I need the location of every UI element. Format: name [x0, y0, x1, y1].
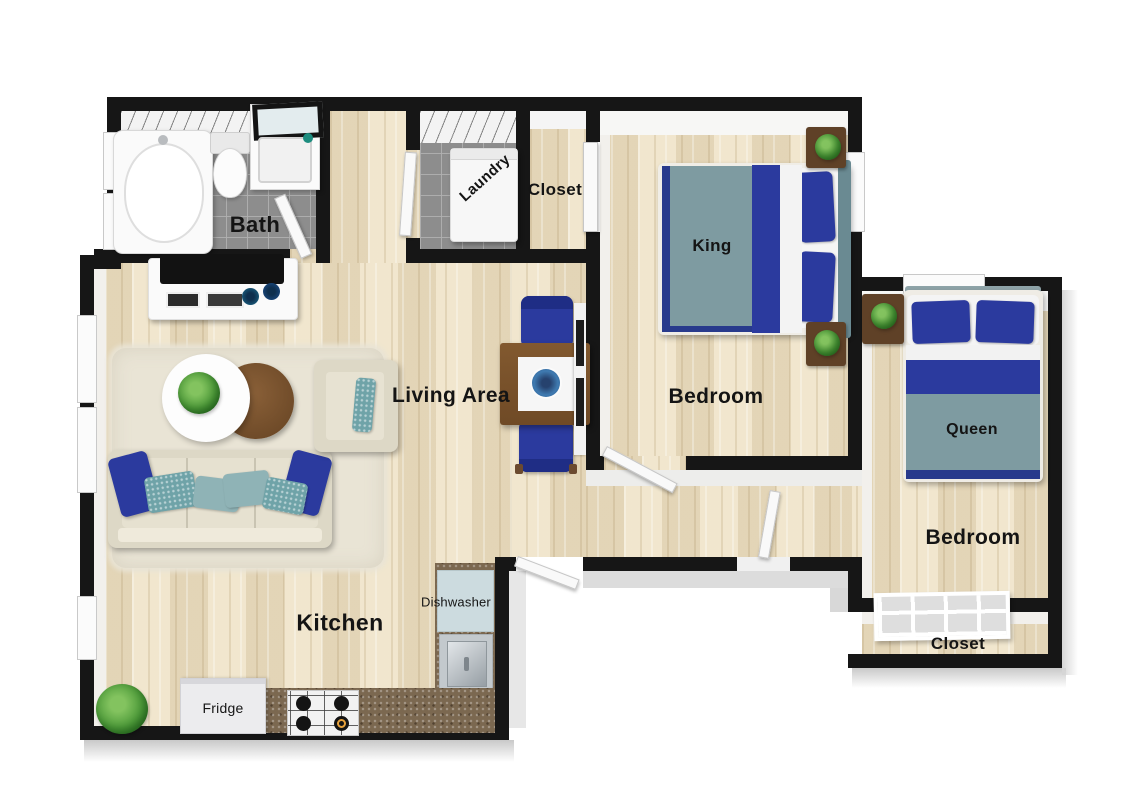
- king-plant-bottom: [814, 330, 840, 356]
- kitchen-sink: [439, 634, 493, 692]
- dining-chair-leg-2: [569, 464, 577, 474]
- hallway-top-floor: [330, 111, 406, 263]
- stove-burner-4: [334, 716, 349, 731]
- armchair: [314, 360, 398, 452]
- wall-laundry-south: [406, 249, 600, 263]
- wall-entry-b: [583, 557, 737, 571]
- dining-chair-top: [521, 296, 573, 348]
- king-label: King: [692, 236, 731, 256]
- closet-top-door: [583, 142, 598, 232]
- coffee-table-plant: [178, 372, 220, 414]
- entry-corner-wall-face: [830, 588, 848, 612]
- king-blanket-stripe: [752, 165, 780, 333]
- wall-king-west-a: [586, 97, 600, 142]
- king-bed: [658, 163, 850, 335]
- living-window-2: [77, 407, 97, 493]
- floor-plan: Bath Laundry Closet King Bedroom Queen B…: [0, 0, 1140, 793]
- console-item-1: [166, 292, 200, 308]
- console-speaker-2: [263, 283, 280, 300]
- sofa-pillow-teal-1: [143, 470, 198, 513]
- king-headboard: [838, 160, 851, 338]
- toilet: [208, 132, 250, 198]
- wall-king-south-b: [686, 456, 862, 470]
- entry-north-wall-face: [583, 571, 862, 588]
- exterior-shadow-right: [1062, 290, 1078, 675]
- stove-burner-3: [296, 716, 311, 731]
- hall-door-threshold: [737, 557, 790, 571]
- king-pillow-1: [796, 171, 836, 243]
- dining-chair-top-back: [521, 296, 573, 309]
- queen-bedroom-label: Bedroom: [926, 526, 1021, 550]
- queen-pillow-1: [911, 300, 970, 344]
- living-window-1: [77, 315, 97, 403]
- sink-faucet-icon: [464, 657, 469, 671]
- dishwasher-label: Dishwasher: [421, 595, 491, 610]
- laundry-wall-face: [420, 111, 516, 143]
- sofa-front-edge: [118, 528, 322, 542]
- tv: [160, 254, 284, 284]
- entry-west-wall-face: [509, 571, 526, 728]
- wall-laundry-west-a: [406, 97, 420, 150]
- kitchen-plant: [96, 684, 148, 734]
- king-plant-top: [815, 134, 841, 160]
- wall-king-south-a: [586, 456, 604, 470]
- king-pillow-2: [796, 251, 836, 323]
- bathtub: [113, 130, 213, 254]
- bath-label: Bath: [230, 212, 281, 238]
- dining-centerpiece: [532, 369, 560, 397]
- king-west-wall-face: [600, 135, 610, 456]
- dining-chair-bottom: [519, 420, 573, 472]
- bath-soap-icon: [303, 133, 313, 143]
- bathtub-basin: [124, 143, 204, 243]
- dining-chair-leg-1: [515, 464, 523, 474]
- stove-burner-2: [334, 696, 349, 711]
- console-item-2: [206, 292, 244, 308]
- closet-bottom-label: Closet: [931, 634, 985, 654]
- exterior-shadow-bottom: [84, 740, 514, 762]
- bathtub-faucet-icon: [158, 135, 168, 145]
- wall-kitchen-east: [495, 557, 509, 740]
- queen-pillow-2: [975, 300, 1034, 344]
- kitchen-label: Kitchen: [296, 610, 383, 637]
- fridge-label: Fridge: [203, 700, 244, 716]
- bath-sink: [258, 137, 312, 183]
- queen-bed: [903, 290, 1043, 482]
- toilet-bowl: [213, 148, 247, 198]
- closet-top-label: Closet: [528, 180, 582, 200]
- wall-media-tv-2: [576, 378, 584, 426]
- closet-top-wall-face: [530, 111, 586, 129]
- kitchen-window: [77, 596, 97, 660]
- bath-mirror: [252, 101, 324, 141]
- queen-west-wall-face: [862, 311, 872, 598]
- queen-blanket-trim: [906, 470, 1040, 479]
- wall-media-tv: [576, 320, 584, 366]
- console-speaker-1: [242, 288, 259, 305]
- wall-entry-c: [790, 557, 862, 571]
- wall-closet-south: [848, 654, 1062, 668]
- living-area-label: Living Area: [392, 384, 510, 408]
- stove-burner-1: [296, 696, 311, 711]
- dining-chair-bottom-back: [519, 459, 573, 472]
- queen-plant: [871, 303, 897, 329]
- wall-closet-divider-b: [1010, 598, 1062, 612]
- queen-label: Queen: [946, 421, 998, 439]
- wall-top: [107, 97, 862, 111]
- king-bedroom-label: Bedroom: [669, 385, 764, 409]
- hallway-north-wall-face: [586, 470, 862, 486]
- exterior-shadow-closet-bottom: [852, 668, 1066, 688]
- bath-vanity: [250, 104, 320, 190]
- king-sheet: [780, 165, 802, 333]
- sofa: [108, 450, 332, 548]
- stove: [287, 690, 359, 736]
- queen-blanket-stripe: [906, 360, 1040, 394]
